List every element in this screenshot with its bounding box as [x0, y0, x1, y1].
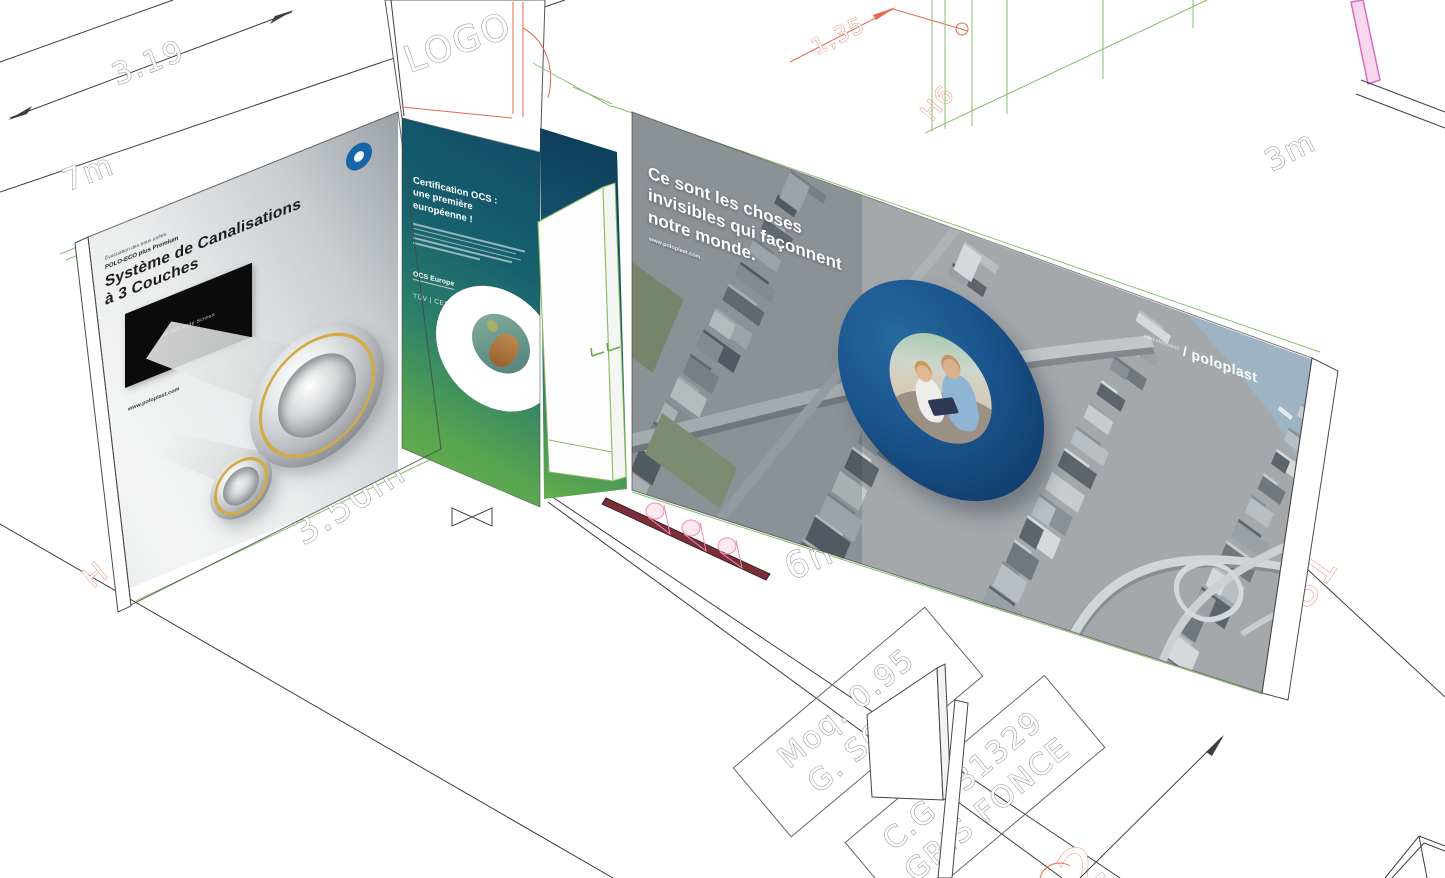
door-panel	[538, 187, 613, 481]
right-wall-outline	[632, 112, 1312, 693]
left-wall-side-edge	[75, 237, 131, 612]
cad-outline-layer	[0, 0, 1445, 878]
cad-booth-rendering: 3.19 7m LOGO 1,35 H6	[0, 0, 1445, 878]
middle-panel-outline	[402, 118, 540, 507]
right-wall-side-edge	[1262, 358, 1338, 700]
left-wall-outline	[88, 112, 441, 605]
